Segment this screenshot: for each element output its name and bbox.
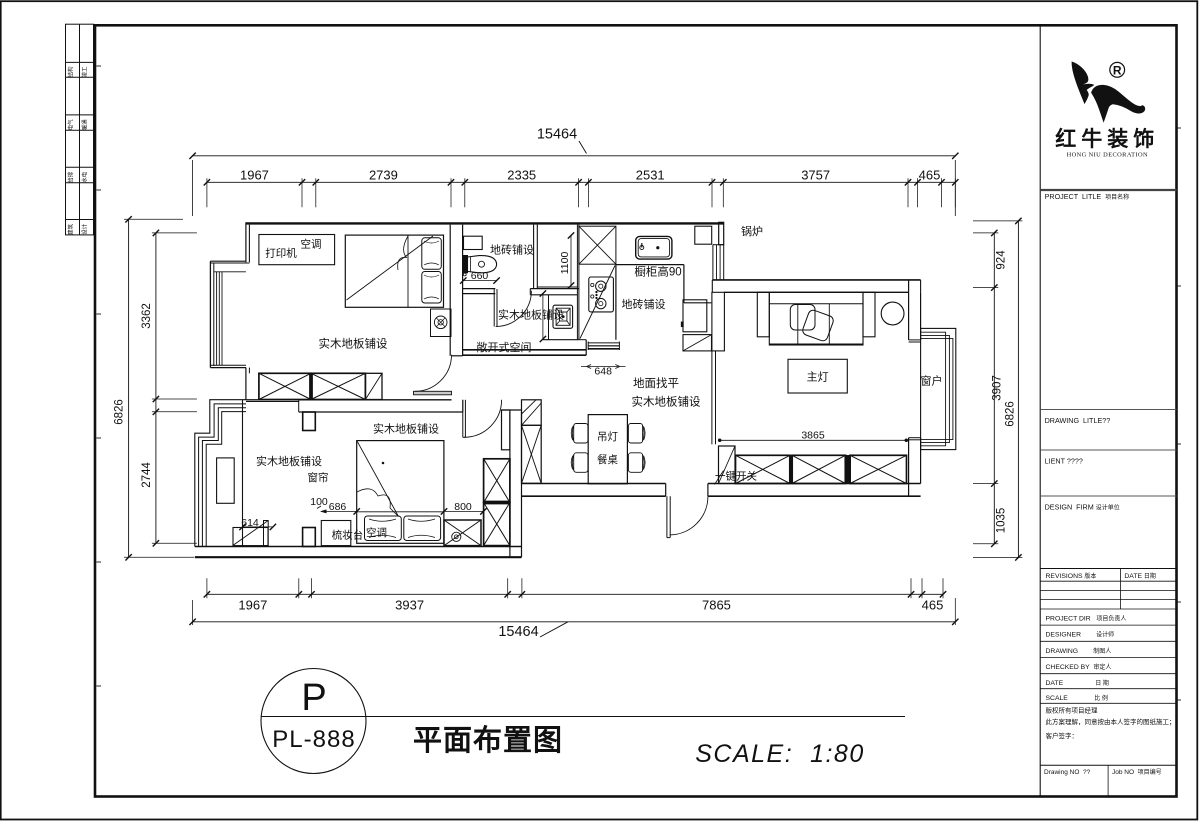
svg-text:DESIGNER 设计师: DESIGNER 设计师	[1046, 631, 1115, 639]
svg-text:R: R	[1113, 64, 1122, 78]
svg-text:CHECKED BY 审定人: CHECKED BY 审定人	[1046, 663, 1112, 671]
svg-text:3362: 3362	[141, 303, 153, 329]
svg-text:吊灯: 吊灯	[597, 431, 618, 443]
svg-text:2739: 2739	[369, 168, 398, 183]
svg-text:敞开式空间: 敞开式空间	[477, 340, 532, 354]
svg-text:660: 660	[471, 270, 489, 282]
svg-text:DATE 日 期: DATE 日 期	[1046, 679, 1109, 687]
svg-text:平面布置图: 平面布置图	[413, 724, 563, 757]
svg-text:PROJECT DIR 项目负责人: PROJECT DIR 项目负责人	[1046, 615, 1127, 623]
svg-text:红牛装饰: 红牛装饰	[1055, 127, 1159, 151]
svg-text:暖通: 暖通	[81, 119, 89, 131]
svg-text:800: 800	[454, 501, 472, 513]
svg-text:648: 648	[594, 366, 612, 378]
svg-text:6826: 6826	[1005, 401, 1017, 427]
svg-text:15464: 15464	[498, 624, 538, 640]
svg-text:15464: 15464	[537, 127, 577, 143]
svg-text:水电: 水电	[81, 171, 89, 183]
svg-text:2335: 2335	[507, 168, 536, 183]
svg-text:竣工: 竣工	[81, 66, 89, 78]
svg-text:SCALE: 1:80: SCALE: 1:80	[695, 740, 864, 768]
svg-text:P: P	[301, 677, 326, 719]
svg-text:设计: 设计	[81, 223, 89, 235]
svg-text:DRAWING LITLE??: DRAWING LITLE??	[1045, 416, 1111, 425]
svg-text:614: 614	[241, 517, 259, 529]
svg-text:电气: 电气	[67, 119, 75, 131]
svg-text:地面找平: 地面找平	[633, 376, 679, 390]
svg-text:DATE 日期: DATE 日期	[1124, 572, 1156, 580]
svg-text:LIENT ????: LIENT ????	[1045, 457, 1083, 466]
svg-text:3907: 3907	[992, 375, 1004, 401]
svg-text:实木地板铺设: 实木地板铺设	[256, 454, 322, 468]
svg-text:PL-888: PL-888	[272, 726, 355, 753]
svg-text:REVISIONS 版本: REVISIONS 版本	[1046, 572, 1097, 580]
svg-text:餐桌: 餐桌	[597, 453, 618, 466]
svg-text:HONG NIU DECORATION: HONG NIU DECORATION	[1067, 152, 1148, 159]
svg-text:3757: 3757	[801, 168, 830, 183]
svg-text:给排: 给排	[67, 171, 75, 183]
svg-text:465: 465	[919, 168, 941, 183]
svg-text:1967: 1967	[238, 598, 267, 613]
svg-text:465: 465	[922, 598, 944, 613]
svg-text:SCALE 比 例: SCALE 比 例	[1046, 694, 1108, 702]
svg-text:空调: 空调	[301, 238, 322, 251]
svg-text:窗户: 窗户	[921, 374, 943, 388]
svg-text:2531: 2531	[636, 168, 665, 183]
svg-text:1035: 1035	[996, 508, 1008, 534]
svg-text:1967: 1967	[240, 168, 269, 183]
svg-text:3937: 3937	[395, 598, 424, 613]
svg-text:主灯: 主灯	[807, 371, 829, 384]
svg-text:打印机: 打印机	[265, 247, 297, 260]
svg-text:3865: 3865	[801, 430, 825, 442]
svg-text:版权所有项目经理: 版权所有项目经理	[1046, 706, 1099, 715]
svg-text:2744: 2744	[141, 462, 153, 488]
svg-text:结构: 结构	[67, 66, 75, 78]
svg-text:1100: 1100	[559, 252, 571, 275]
svg-text:客户签字：: 客户签字：	[1046, 731, 1079, 740]
svg-text:Drawing NO ??: Drawing NO ??	[1044, 769, 1091, 776]
svg-text:建筑: 建筑	[67, 223, 75, 235]
svg-text:924: 924	[996, 250, 1008, 270]
svg-text:100: 100	[310, 496, 328, 508]
svg-text:空调: 空调	[366, 526, 387, 539]
svg-text:实木地板铺设: 实木地板铺设	[498, 308, 564, 322]
svg-text:地砖铺设: 地砖铺设	[622, 297, 666, 311]
svg-text:一键开关: 一键开关	[715, 470, 757, 483]
svg-text:梳妆台: 梳妆台	[332, 529, 364, 542]
svg-text:实木地板铺设: 实木地板铺设	[632, 395, 701, 409]
svg-text:此方案理解，同意按由本人签字的图纸施工；: 此方案理解，同意按由本人签字的图纸施工；	[1046, 717, 1176, 726]
svg-text:橱柜高90: 橱柜高90	[634, 265, 681, 279]
svg-text:实木地板铺设: 实木地板铺设	[319, 337, 388, 351]
svg-text:DRAWING 制图人: DRAWING 制图人	[1046, 647, 1112, 655]
svg-text:686: 686	[329, 501, 347, 513]
svg-text:Job NO 项目编号: Job NO 项目编号	[1112, 768, 1162, 776]
svg-text:地砖铺设: 地砖铺设	[490, 243, 534, 257]
svg-text:锅炉: 锅炉	[741, 225, 763, 238]
svg-text:6826: 6826	[114, 399, 126, 425]
svg-text:实木地板铺设: 实木地板铺设	[373, 422, 439, 436]
svg-text:窗帘: 窗帘	[308, 471, 329, 484]
svg-text:7865: 7865	[702, 598, 731, 613]
